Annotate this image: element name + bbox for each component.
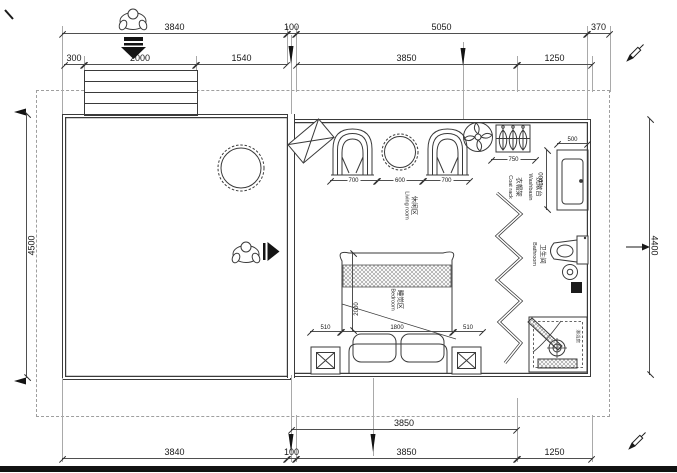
entry-cabinet bbox=[288, 119, 334, 163]
coat-rack-label: 衣帽架 Coat rack bbox=[507, 164, 521, 210]
round-table bbox=[218, 145, 264, 191]
shower-label: 淋浴房 bbox=[575, 323, 580, 349]
living-room-label: 休闲区 Living room bbox=[403, 179, 418, 233]
dim-seat-700: 700 bbox=[330, 180, 377, 181]
nightstand bbox=[452, 347, 481, 374]
zigzag-partition bbox=[497, 193, 521, 363]
section-arrow-icon bbox=[289, 46, 466, 452]
floor-plan-canvas: 3840 100 5050 370 300 2000 1540 3850 125… bbox=[0, 0, 677, 473]
dim-bed-510: 510 bbox=[453, 331, 483, 332]
furniture-layer bbox=[0, 0, 677, 473]
dim-top2-3850: 3850 bbox=[296, 64, 517, 65]
pillow bbox=[353, 334, 396, 362]
dim-bed-2000 bbox=[352, 253, 353, 331]
toilet bbox=[551, 236, 589, 293]
hanger-icon bbox=[499, 126, 507, 150]
bathroom-label: 卫生间 Bathroom bbox=[531, 231, 545, 277]
dim-bottom2-1250: 1250 bbox=[517, 458, 592, 459]
dim-label-4400: 4400 bbox=[650, 231, 659, 261]
nightstand bbox=[311, 347, 340, 374]
dim-washbasin-500: 500 bbox=[557, 143, 588, 144]
dim-bottom2-3850: 3850 bbox=[296, 458, 517, 459]
dim-bed-510: 510 bbox=[310, 331, 341, 332]
leader-arrow-icon bbox=[626, 244, 650, 251]
pen-icon bbox=[626, 431, 647, 452]
hanger-icon bbox=[509, 126, 517, 150]
arch-chair bbox=[426, 129, 469, 175]
coffee-table bbox=[382, 134, 418, 170]
page-bottom-rule bbox=[0, 466, 677, 472]
pen-icon bbox=[624, 43, 645, 64]
dim-bottom2-3840: 3840 bbox=[62, 458, 287, 459]
dim-coatrack-750: 750 bbox=[491, 159, 536, 160]
dim-label-2000: 2000 bbox=[354, 297, 360, 321]
pillow bbox=[401, 334, 444, 362]
corner-mark bbox=[5, 10, 13, 19]
dim-top1-3840: 3840 bbox=[62, 33, 287, 34]
walk-arrow-icon bbox=[263, 242, 280, 261]
dim-label-4500: 4500 bbox=[28, 231, 37, 261]
dim-top2-1540: 1540 bbox=[196, 64, 287, 65]
washbasin-label: 洗漱台 Washbasin bbox=[527, 164, 541, 210]
arch-chair bbox=[331, 129, 374, 175]
dim-end-arrow bbox=[14, 109, 26, 385]
bedroom-label: 睡觉区 Bedroom bbox=[389, 273, 404, 327]
dim-washbasin-1000 bbox=[546, 150, 547, 210]
hanger-icon bbox=[519, 126, 527, 150]
dim-seat-700: 700 bbox=[423, 180, 470, 181]
dim-bottom1-3850: 3850 bbox=[291, 429, 517, 430]
dim-top2-300: 300 bbox=[64, 64, 84, 65]
dim-top1-370: 370 bbox=[587, 33, 610, 34]
person-top-view-icon bbox=[118, 9, 149, 31]
dim-top2-1250: 1250 bbox=[517, 64, 592, 65]
person-top-view-icon bbox=[231, 242, 262, 264]
ceiling-fan-icon bbox=[464, 123, 493, 152]
dim-top2-2000: 2000 bbox=[84, 64, 196, 65]
dim-bed-1800: 1800 bbox=[341, 331, 453, 332]
washbasin bbox=[557, 150, 588, 210]
dim-top1-5050: 5050 bbox=[296, 33, 587, 34]
